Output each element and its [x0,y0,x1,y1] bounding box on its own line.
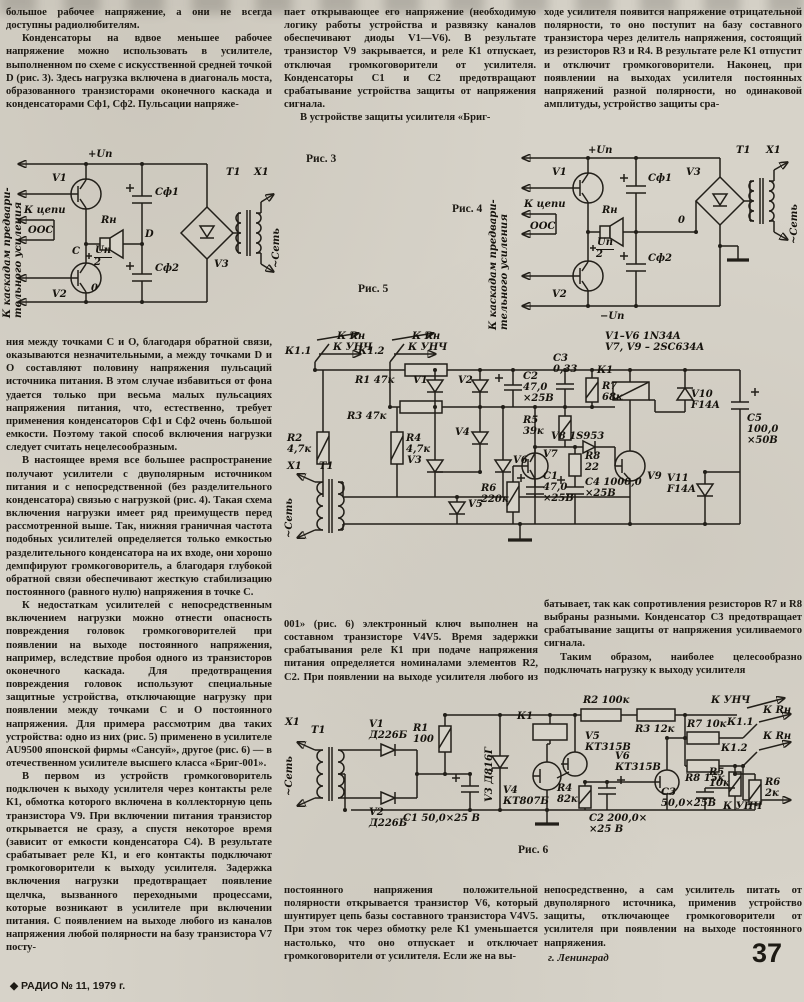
body-text: ходе усилителя появится напряжение отриц… [544,6,802,111]
fig6-label-r5: R510к [709,768,730,790]
fig6-label-krn2: К Rн [763,732,791,743]
fig5-label-k11: К1.1 [285,347,312,358]
fig3-label-rn: Rн [101,216,117,227]
fig3-caption: Рис. 3 [306,153,336,165]
fig5-label-r1: R1 47к [355,376,394,387]
fig3-label-cf1: Сф1 [155,188,179,199]
fig5-label-v3: V3 [407,456,422,467]
fig5-label-v6: V6 [513,456,528,467]
fig3-label-c: С [72,247,80,258]
fig5-caption: Рис. 5 [358,283,388,295]
column3-top: ходе усилителя появится напряжение отриц… [544,6,802,146]
fig6-label-k12: К1.2 [721,744,748,755]
fig5-label-v10: V10F14A [691,390,720,412]
fig6-label-k1: К1 [517,712,533,723]
fig5-label-c2: С247,0×25В [523,372,554,404]
fig6-label-r7: R7 10к [687,720,726,731]
fig4-label-cf2: Сф2 [648,254,672,265]
fig5-label-v8: V8 1S953 [551,432,604,443]
fig3-label-up: +Uп [88,150,112,161]
fig3-label-cf2: Сф2 [155,264,179,275]
fig4-label-t1: T1 [736,146,750,157]
fig6-label-v6: V6КТ315В [615,752,661,774]
fig5-label-r7: R768к [602,382,623,404]
fig6-label-t1: T1 [311,726,325,737]
fig6-label-net: ~Сеть [285,756,296,796]
fig5-parts-note: V1–V6 1N34AV7, V9 – 2SC634A [605,332,704,354]
fig6-label-kunch-top: К УНЧ [711,696,750,707]
fig5-label-x1: X1 [287,462,302,473]
fig5-label-r6: R6220к [481,484,509,506]
fig5-label-k1: К1 [597,366,613,377]
fig5-label-c5: С5100,0×50В [747,414,778,446]
body-text: батывает, так как сопротивления резистор… [544,598,802,651]
fig3-label-net: ~Сеть [272,228,283,268]
fig5-label-k12: К1.2 [358,347,385,358]
author-location: г. Ленинград [548,952,609,964]
fig6-label-x1: X1 [285,718,300,729]
fig6-label-v3: V3 Д816Г [485,747,496,802]
fig5-label-v11: V11F14A [667,474,696,496]
fig5-label-c4: С4 1000,0×25В [585,478,642,500]
fig3-label-v2: V2 [52,290,67,301]
fig4-label-v1: V1 [552,168,567,179]
fig4-label-net: ~Сеть [790,204,801,244]
body-text: В устройстве защиты усилителя «Бриг- [284,111,536,124]
body-text: постоянного напряжения положительной пол… [284,884,538,963]
body-text: К недостаткам усилителей с непосредствен… [6,599,272,770]
magazine-footer: ◆ РАДИО № 11, 1979 г. [10,980,125,992]
fig5-label-r2: R24,7к [287,434,311,456]
fig5-label-v9: V9 [647,472,662,483]
fig3-label-t1: T1 [226,168,240,179]
fig6-label-c3: С350,0×25В [661,788,716,810]
fig4-side-label: К каскадам предвари-тельного усиления [489,199,511,330]
fig5-label-v1: V1 [413,376,428,387]
fig4-label-cf1: Сф1 [648,174,672,185]
fig4-caption: Рис. 4 [452,203,482,215]
fig6-label-v4: V4КТ807Б [503,786,549,808]
body-text: Конденсаторы на вдвое меньшее рабочее на… [6,32,272,111]
fig3-label-o: 0 [91,284,98,295]
column1-main: ния между точками С и О, благодаря обрат… [6,336,272,966]
figure6-circuit: X1 ~Сеть T1 V1Д226Б V2Д226Б R1100 С1 50,… [285,668,797,868]
magazine-page-scan: большое рабочее напряжение, а они не все… [0,0,804,1002]
fig6-label-kunch-bot: К УНЧ [723,802,762,813]
fig3-label-kcepi: К цепи [24,206,66,217]
column2-bottom: постоянного напряжения положительной пол… [284,884,538,980]
body-text: пает открывающее его напряжение (необход… [284,6,536,111]
fig4-label-oos: ООС [530,222,555,233]
fig3-label-d: D [145,230,154,241]
figure5-circuit: К1.1 К Rн К УНЧ К1.2 К Rн К УНЧ V1–V6 1N… [285,332,804,574]
fig6-label-v1: V1Д226Б [369,720,407,742]
fig5-label-v2: V2 [458,376,473,387]
fig5-label-r8: R822 [585,452,600,474]
fig4-label-v3: V3 [686,168,701,179]
body-text: В настоящее время все большее распростра… [6,454,272,599]
fig5-label-kunch2: К УНЧ [408,343,447,354]
fig6-label-c1: С1 50,0×25 В [403,814,480,825]
fig6-label-r4: R482к [557,784,578,806]
fig5-label-net: ~Сеть [285,498,296,538]
fig5-label-r3: R3 47к [347,412,386,423]
fig5-label-v7: V7 [543,450,558,461]
body-text: большое рабочее напряжение, а они не все… [6,6,272,32]
fig6-label-v2: V2Д226Б [369,808,407,830]
page-number: 37 [752,938,782,969]
fig3-label-v3: V3 [214,260,229,271]
fig6-label-k11: К1.1 [727,718,754,729]
fig3-label-x1: X1 [254,168,269,179]
fig5-label-c3: С30,33 [553,354,577,376]
body-text: ния между точками С и О, благодаря обрат… [6,336,272,454]
fig4-label-rn: Rн [602,206,618,217]
fig3-label-v1: V1 [52,174,67,185]
fig6-label-r6: R62к [765,778,780,800]
column1-top: большое рабочее напряжение, а они не все… [6,6,272,132]
fig4-label-un: −Uп [600,312,624,323]
fig6-label-r2: R2 100к [583,696,629,707]
fig4-label-x1: X1 [766,146,781,157]
fig4-label-v2: V2 [552,290,567,301]
fig5-label-r4: R44,7к [406,434,430,456]
figure4-circuit: К каскадам предвари-тельного усиления +U… [488,146,804,336]
figure3-circuit: К каскадам предвари-тельного усиления +U… [2,150,280,325]
fig4-label-up: +Uп [588,146,612,157]
fig5-label-r5: R539к [523,416,544,438]
fig6-label-c2: С2 200,0××25 В [589,814,647,836]
fig4-label-o: 0 [678,216,685,227]
fig5-label-t1: T1 [319,462,333,473]
fig6-label-r3: R3 12к [635,725,674,736]
fig3-label-up2: Uп2 [94,246,112,269]
fig6-label-krn1: К Rн [763,706,791,717]
fig5-label-c1: С147,0×25В [543,472,574,504]
body-text: В первом из устройств громкоговоритель п… [6,770,272,954]
fig6-caption: Рис. 6 [518,844,548,856]
fig5-label-v4: V4 [455,428,470,439]
fig3-label-oos: ООС [28,226,53,237]
fig4-schematic [488,146,804,336]
fig4-label-up2: Uп2 [596,238,614,261]
fig6-label-r1: R1100 [413,724,434,746]
fig4-label-kcepi: К цепи [524,200,566,211]
fig3-side-label: К каскадам предвари-тельного усиления [3,187,25,318]
column2-top: пает открывающее его напряжение (необход… [284,6,536,148]
